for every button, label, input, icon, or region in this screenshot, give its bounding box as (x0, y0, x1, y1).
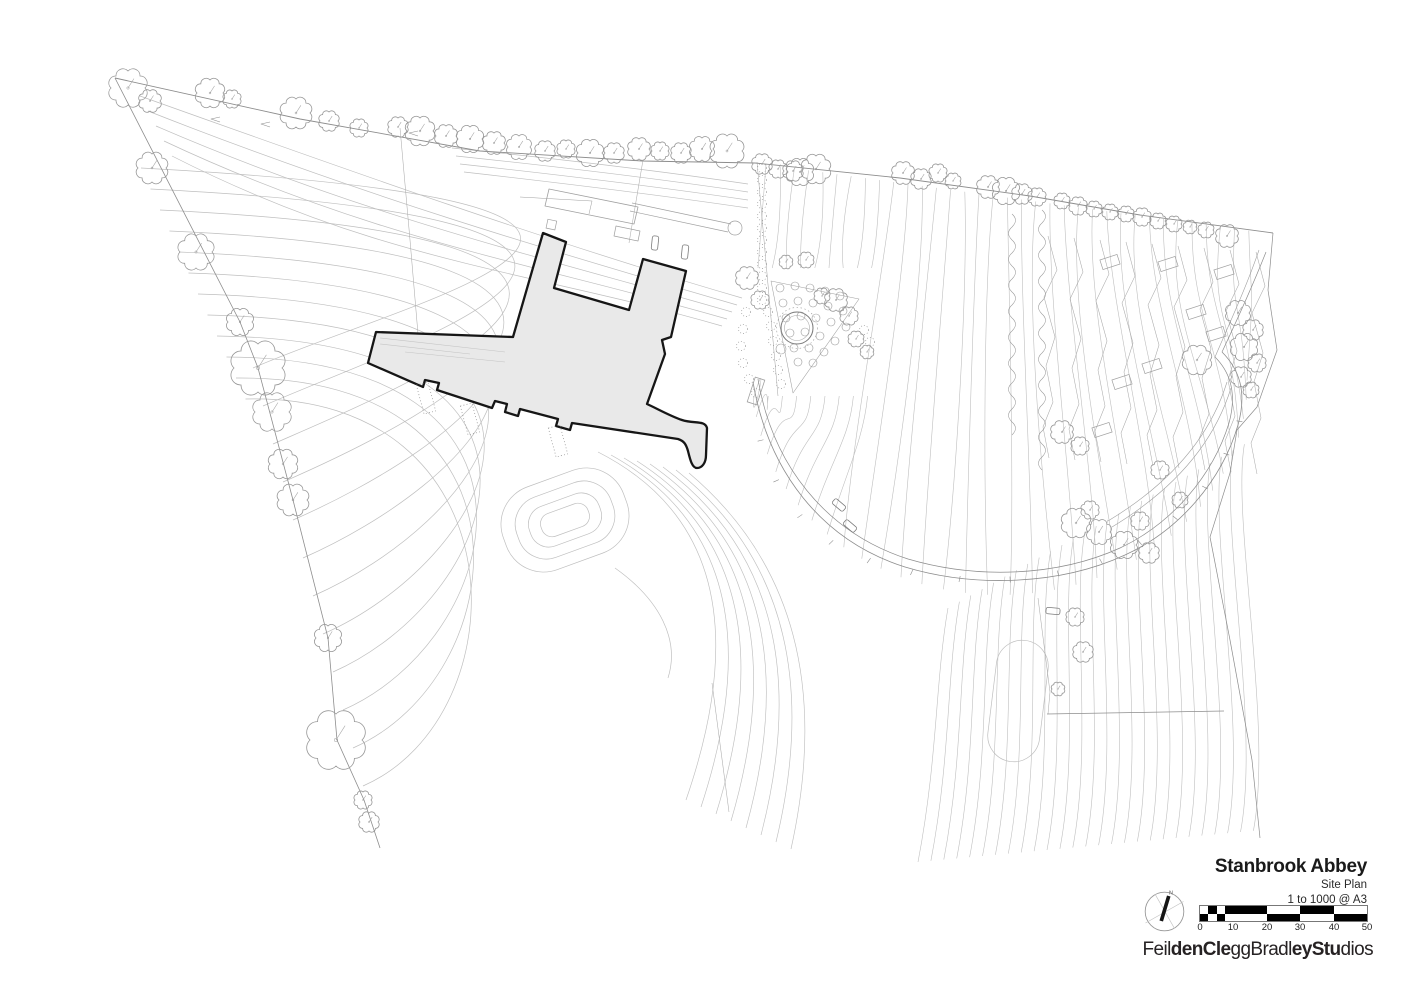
tree-icon (136, 152, 168, 184)
tree-icon (354, 791, 372, 809)
tree-icon (319, 111, 339, 131)
tree-icon (671, 143, 691, 163)
north-arrow: N (1142, 889, 1188, 935)
title-block: Stanbrook Abbey Site Plan 1 to 1000 @ A3 (1215, 857, 1367, 907)
scale-label-40: 40 (1324, 922, 1344, 933)
tree-icon (557, 140, 575, 158)
scale-segment (1225, 906, 1233, 914)
scale-label-30: 30 (1290, 922, 1310, 933)
tree-icon (226, 308, 253, 335)
scale-segment (1208, 914, 1216, 922)
tree-icon (1133, 208, 1151, 226)
tree-icon (651, 142, 669, 160)
north-needle-icon (1160, 896, 1171, 922)
scale-label-10: 10 (1223, 922, 1243, 933)
tree-icon (1248, 354, 1266, 372)
tree-icon (268, 449, 297, 478)
tree-icon (139, 90, 162, 113)
logo-segment: ggBradl (1230, 939, 1291, 960)
tree-icon (860, 345, 874, 359)
scale-segment (1233, 914, 1266, 922)
tree-icon (1102, 204, 1118, 220)
tree-icon (1051, 682, 1065, 696)
tree-icon (1086, 201, 1102, 217)
scale-segment (1334, 914, 1367, 922)
tree-icon (1243, 320, 1263, 340)
tree-icon (1061, 508, 1090, 537)
tree-icon (280, 97, 312, 129)
scale-segment (1233, 906, 1266, 914)
scale-bar-row-bottom (1200, 914, 1367, 922)
tree-icon (977, 176, 1000, 199)
tree-icon (1087, 520, 1112, 545)
tree-icon (195, 78, 224, 107)
scale-label-50: 50 (1357, 922, 1377, 933)
tree-icon (231, 341, 285, 395)
site-plan-sheet: Stanbrook Abbey Site Plan 1 to 1000 @ A3… (0, 0, 1414, 1000)
scale-label-0: 0 (1190, 922, 1210, 933)
tree-icon (1051, 421, 1074, 444)
logo-segment: Feil (1143, 939, 1171, 960)
scale-segment (1225, 914, 1233, 922)
garden-features (737, 162, 1046, 470)
tree-icon (576, 139, 603, 166)
scale-segment (1208, 906, 1216, 914)
scale-segment (1267, 914, 1300, 922)
tree-icon (483, 132, 506, 155)
scale-segment (1300, 906, 1333, 914)
tree-icon (507, 135, 532, 160)
scale-bar-row-top (1200, 906, 1367, 914)
scale-segment (1334, 906, 1367, 914)
scale-label-20: 20 (1257, 922, 1277, 933)
tree-icon (307, 711, 366, 770)
scale-segment (1300, 914, 1333, 922)
north-label: N (1169, 891, 1173, 897)
tree-icon (109, 69, 147, 107)
tree-icon (456, 125, 483, 152)
tree-icon (314, 624, 341, 651)
tree-icon (1230, 333, 1257, 360)
scale-segment (1217, 914, 1225, 922)
contour-lines (140, 96, 1265, 862)
tree-icon (277, 484, 309, 516)
scale-segment (1217, 906, 1225, 914)
scale-segment (1200, 914, 1208, 922)
tree-icon (405, 116, 434, 145)
practice-logo: FeildenCleggBradleyStudios (1143, 939, 1373, 961)
tree-icon (1073, 642, 1093, 662)
project-title: Stanbrook Abbey (1215, 857, 1367, 877)
drawing-title: Site Plan (1215, 879, 1367, 892)
scale-segment (1200, 906, 1208, 914)
tree-icon (1028, 188, 1046, 206)
logo-segment: eyStu (1292, 939, 1341, 960)
logo-segment: dios (1341, 939, 1373, 960)
logo-segment: denCle (1171, 939, 1231, 960)
scale-segment (1267, 906, 1300, 914)
tree-icon (736, 267, 759, 290)
tree-icon (628, 138, 651, 161)
scale-bar (1200, 906, 1367, 921)
site-plan-drawing (0, 0, 1414, 1000)
tree-icon (929, 164, 947, 182)
